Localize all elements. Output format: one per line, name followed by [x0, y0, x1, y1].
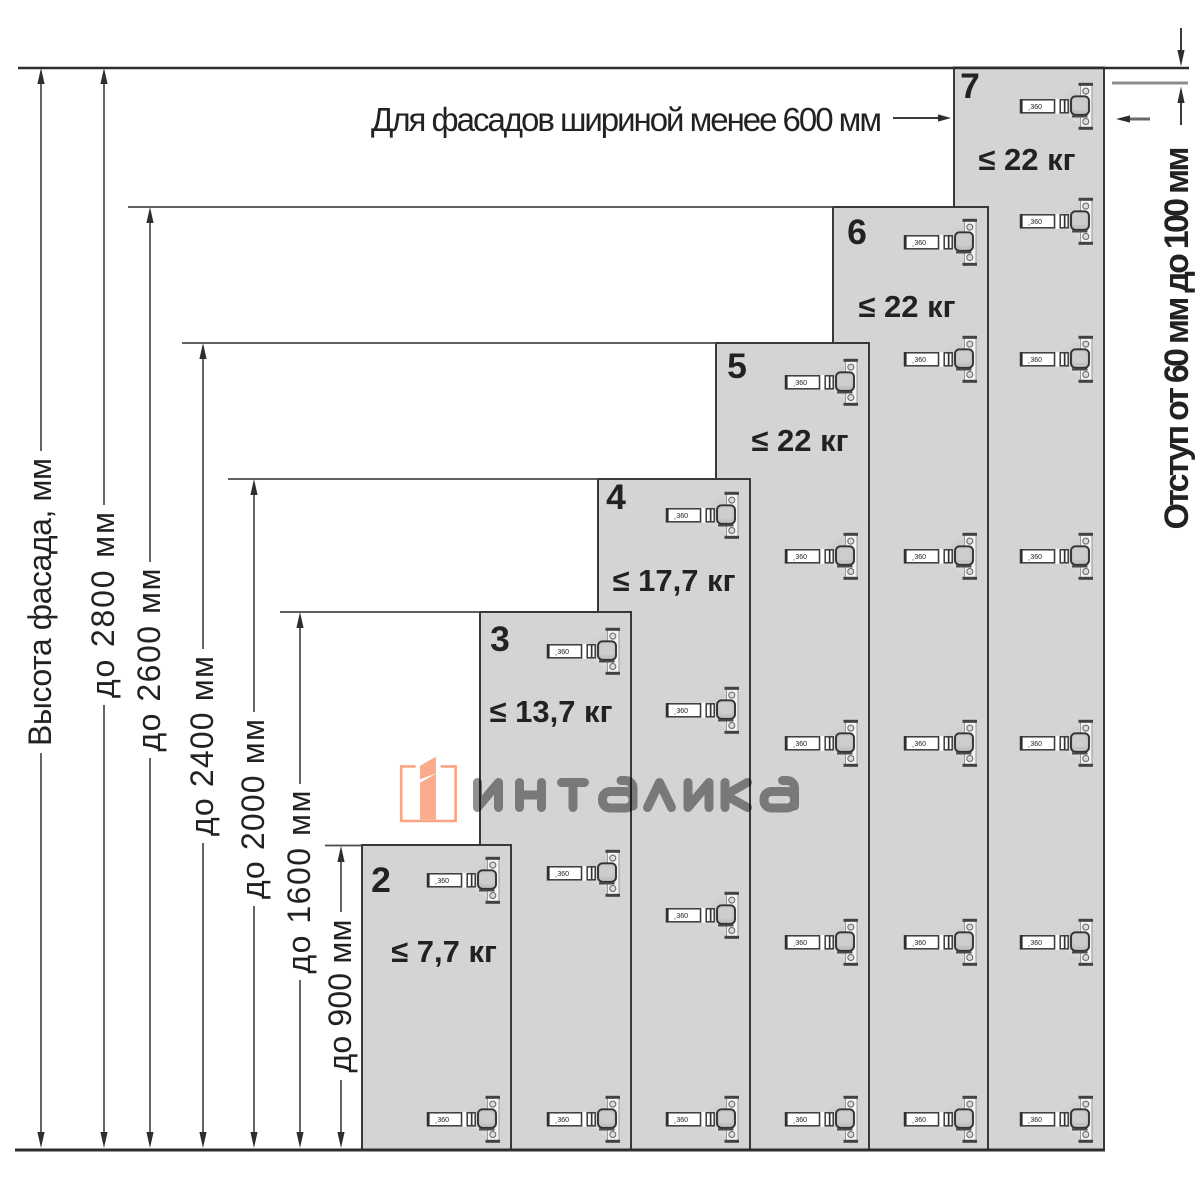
svg-text:до 900 мм: до 900 мм [322, 920, 358, 1073]
svg-text:Отступ от 60 мм до 100 мм: Отступ от 60 мм до 100 мм [1158, 147, 1196, 530]
svg-text:Для фасадов шириной менее 600: Для фасадов шириной менее 600 мм [371, 101, 882, 138]
svg-text:Высота фасада, мм: Высота фасада, мм [22, 458, 58, 746]
svg-text:до 2400 мм: до 2400 мм [184, 656, 220, 836]
svg-text:6: 6 [847, 212, 867, 252]
svg-text:≤ 13,7 кг: ≤ 13,7 кг [489, 694, 612, 729]
svg-text:≤ 7,7 кг: ≤ 7,7 кг [391, 934, 497, 969]
svg-text:≤ 22 кг: ≤ 22 кг [978, 142, 1075, 177]
svg-text:≤ 22 кг: ≤ 22 кг [751, 423, 848, 458]
svg-text:3: 3 [490, 619, 510, 659]
svg-text:7: 7 [960, 66, 980, 106]
svg-text:2: 2 [371, 860, 391, 900]
svg-text:5: 5 [727, 346, 747, 386]
svg-text:до 2800 мм: до 2800 мм [85, 512, 121, 698]
svg-text:4: 4 [606, 477, 626, 517]
svg-text:≤ 17,7 кг: ≤ 17,7 кг [612, 563, 735, 598]
svg-text:до 2000 мм: до 2000 мм [235, 719, 271, 899]
svg-text:до 1600 мм: до 1600 мм [281, 791, 317, 974]
svg-text:≤ 22 кг: ≤ 22 кг [858, 289, 955, 324]
svg-text:до 2600 мм: до 2600 мм [131, 569, 167, 752]
